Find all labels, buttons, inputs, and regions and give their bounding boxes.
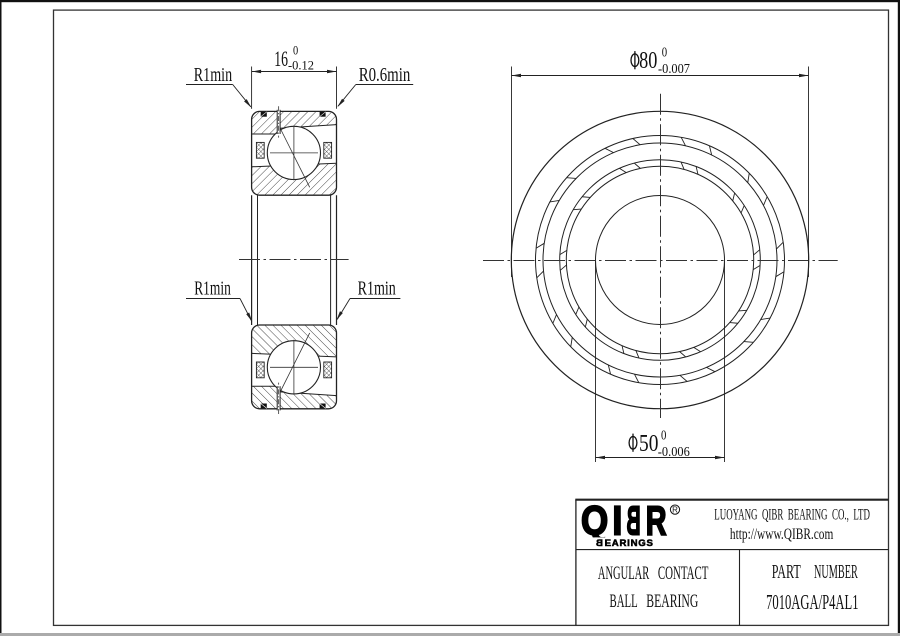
- svg-text:80: 80: [639, 48, 657, 74]
- svg-text:ANGULAR: ANGULAR: [598, 563, 649, 584]
- svg-text:I: I: [612, 498, 622, 544]
- svg-text:LUOYANG QIBR BEARING CO.,: LUOYANG QIBR BEARING CO., LTD: [714, 507, 870, 524]
- svg-text:16: 16: [274, 46, 288, 71]
- svg-text:-0.006: -0.006: [658, 444, 690, 459]
- svg-text:R1min: R1min: [194, 64, 232, 86]
- svg-text:R0.6min: R0.6min: [359, 64, 411, 86]
- svg-text:B: B: [626, 498, 640, 544]
- svg-text:0: 0: [661, 427, 667, 442]
- svg-text:http://www.QIBR.com: http://www.QIBR.com: [730, 526, 833, 543]
- svg-text:R: R: [672, 506, 678, 515]
- svg-text:R: R: [646, 498, 667, 544]
- svg-text:7010AGA/P4AL1: 7010AGA/P4AL1: [766, 590, 858, 614]
- svg-text:BEARING: BEARING: [646, 591, 698, 612]
- svg-text:50: 50: [639, 431, 658, 457]
- svg-text:0: 0: [662, 44, 668, 59]
- svg-text:CONTACT: CONTACT: [658, 563, 709, 584]
- svg-text:NUMBER: NUMBER: [814, 561, 858, 583]
- svg-text:-0.12: -0.12: [288, 58, 314, 73]
- svg-text:B: B: [596, 538, 603, 549]
- svg-text:BALL: BALL: [610, 591, 638, 612]
- svg-text:R1min: R1min: [358, 277, 396, 299]
- svg-text:Q: Q: [581, 498, 608, 544]
- svg-text:R1min: R1min: [194, 277, 231, 299]
- svg-text:EARINGS: EARINGS: [605, 538, 654, 549]
- svg-text:PART: PART: [772, 561, 801, 583]
- svg-text:-0.007: -0.007: [658, 61, 690, 76]
- svg-text:0: 0: [293, 43, 298, 58]
